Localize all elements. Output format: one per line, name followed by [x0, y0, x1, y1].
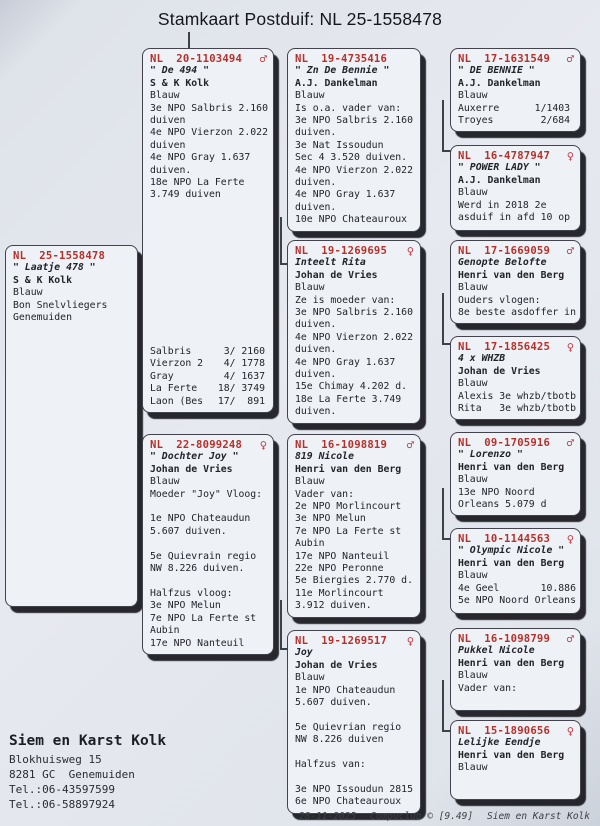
result-line: Bon Snelvliegers — [13, 300, 135, 312]
ring-number: NL 25-1558478 — [13, 250, 105, 262]
ring-number: NL 19-4735416 — [295, 53, 387, 65]
result-line: 10e NPO Chateauroux — [295, 214, 418, 226]
result-line: 18e NPO La Ferte — [150, 177, 271, 189]
male-icon: ♂ — [567, 438, 574, 448]
box-header: NL 16-1098799♂ — [458, 633, 578, 645]
pedigree-box-great-grandparent-5: NL 09-1705916♂" Lorenzo "Henri van den B… — [450, 432, 581, 516]
pedigree-box-mother: NL 22-8099248♀" Dochter Joy "Johan de Vr… — [142, 434, 274, 655]
result-line — [150, 575, 271, 587]
result-line: 1e NPO Chateaudun — [295, 685, 418, 697]
race-stat-cell: 3/ 2160 — [224, 346, 265, 358]
result-line: duiven. — [150, 165, 271, 177]
result-line: Halfzus vloog: — [150, 588, 271, 600]
print-footer: 28-11-2025Compuclub © [9.49]Siem en Kars… — [299, 811, 590, 822]
male-icon: ♂ — [567, 634, 574, 644]
ring-number: NL 19-1269517 — [295, 635, 387, 647]
female-icon: ♀ — [407, 246, 414, 256]
result-line: Sec 4 3.520 duiven. — [295, 152, 418, 164]
pedigree-box-great-grandparent-4: NL 17-1856425♀4 x WHZBJohan de VriesBlau… — [450, 336, 581, 420]
result-line: 1e NPO Chateaudun — [150, 513, 271, 525]
result-line: 7e NPO La Ferte st — [150, 613, 271, 625]
result-line: duiven. — [295, 127, 418, 139]
female-icon: ♀ — [567, 151, 574, 161]
result-line: Blauw — [458, 378, 578, 390]
result-line: 3e NPO Salbris 2.160 — [150, 103, 271, 115]
female-icon: ♀ — [567, 534, 574, 544]
result-line: Ouders vlogen: — [458, 295, 578, 307]
result-line: 5e Biergies 2.770 d. — [295, 575, 418, 587]
loft-name: Johan de Vries — [295, 270, 418, 282]
result-line — [295, 771, 418, 783]
box-header: NL 16-1098819♂ — [295, 439, 418, 451]
result-line: Werd in 2018 2e — [458, 200, 578, 212]
pedigree-box-grandmother-maternal: NL 19-1269517♀JoyJohan de VriesBlauw1e N… — [287, 630, 421, 814]
owner-phone-line: Tel.:06-43597599 — [9, 782, 166, 797]
result-line: Halfzus van: — [295, 759, 418, 771]
loft-name: Henri van den Berg — [458, 558, 578, 570]
result-line: duiven. — [295, 319, 418, 331]
loft-name: Johan de Vries — [295, 660, 418, 672]
box-header: NL 09-1705916♂ — [458, 437, 578, 449]
result-line: 5e NPO Noord Orleans — [458, 595, 578, 607]
race-stat-cell: Laon (Bes — [150, 396, 203, 408]
loft-name: Henri van den Berg — [458, 462, 578, 474]
box-header: NL 17-1669059♂ — [458, 245, 578, 257]
race-stat-cell: 4/ 1637 — [224, 371, 265, 383]
male-icon: ♂ — [260, 54, 267, 64]
ring-number: NL 16-4787947 — [458, 150, 550, 162]
result-line: 8e beste asdoffer in — [458, 307, 578, 319]
race-stat-cell: La Ferte — [150, 383, 197, 395]
result-line: 5.607 duiven. — [150, 526, 271, 538]
loft-name: Henri van den Berg — [458, 750, 578, 762]
result-line: 2e NPO Morlincourt — [295, 501, 418, 513]
page-title: Stamkaart Postduif: NL 25-1558478 — [0, 9, 600, 30]
result-line: 3e NPO Salbris 2.160 — [295, 115, 418, 127]
box-header: NL 19-1269695♀ — [295, 245, 418, 257]
pedigree-box-great-grandparent-6: NL 10-1144563♀" Olympic Nicole "Henri va… — [450, 528, 581, 614]
result-line: Blauw — [295, 476, 418, 488]
result-line: Blauw — [150, 476, 271, 488]
race-stat-cell: 18/ 3749 — [218, 383, 265, 395]
pedigree-box-great-grandparent-3: NL 17-1669059♂Genopte BelofteHenri van d… — [450, 240, 581, 324]
loft-name: Henri van den Berg — [458, 658, 578, 670]
owner-phone-line: Tel.:06-58897924 — [9, 797, 166, 812]
result-line: duiven. — [295, 369, 418, 381]
pigeon-name: " De 494 " — [150, 65, 271, 77]
box-header: NL 20-1103494♂ — [150, 53, 271, 65]
spacer — [150, 202, 271, 346]
result-line: Rita 3e whzb/tbotb — [458, 403, 578, 415]
ring-number: NL 20-1103494 — [150, 53, 242, 65]
ring-number: NL 17-1631549 — [458, 53, 550, 65]
box-header: NL 25-1558478 — [13, 250, 135, 262]
result-line: Blauw — [458, 762, 578, 774]
result-line: 17e NPO Nanteuil — [150, 638, 271, 650]
owner-contact-block: Siem en Karst Kolk Blokhuisweg 15 8281 G… — [9, 733, 166, 812]
result-line: Aubin — [150, 625, 271, 637]
result-line: 7e NPO La Ferte st — [295, 526, 418, 538]
result-line: 3.749 duiven — [150, 189, 271, 201]
pigeon-name: Genopte Belofte — [458, 257, 578, 269]
footer-owner: Siem en Karst Kolk — [487, 811, 590, 822]
pedigree-box-great-grandparent-7: NL 16-1098799♂Pukkel NicoleHenri van den… — [450, 628, 581, 711]
result-line: 5e Quievrian regio — [295, 722, 418, 734]
result-line: 4e NPO Vierzon 2.022 — [150, 127, 271, 139]
result-line: Blauw — [150, 90, 271, 102]
ring-number: NL 22-8099248 — [150, 439, 242, 451]
ring-number: NL 17-1669059 — [458, 245, 550, 257]
result-line: duiven. — [295, 406, 418, 418]
ring-number: NL 09-1705916 — [458, 437, 550, 449]
result-line: Blauw — [13, 287, 135, 299]
male-icon: ♂ — [407, 440, 414, 450]
result-line: Blauw — [458, 90, 578, 102]
result-line: 3e NPO Melun — [295, 513, 418, 525]
result-line — [295, 709, 418, 721]
loft-name: Henri van den Berg — [458, 270, 578, 282]
result-line: 4e NPO Gray 1.637 — [295, 357, 418, 369]
box-header: NL 16-4787947♀ — [458, 150, 578, 162]
result-line: 11e Morlincourt — [295, 588, 418, 600]
box-header: NL 15-1890656♀ — [458, 725, 578, 737]
pigeon-name: " Laatje 478 " — [13, 262, 135, 274]
female-icon: ♀ — [260, 440, 267, 450]
result-line: Vader van: — [295, 489, 418, 501]
result-line: Auxerre 1/1403 — [458, 103, 578, 115]
race-stat-cell: 17/ 891 — [218, 396, 265, 408]
pigeon-name: Inteelt Rita — [295, 257, 418, 269]
pedigree-card-page: Stamkaart Postduif: NL 25-1558478 NL 25-… — [0, 0, 600, 826]
result-line: Blauw — [295, 282, 418, 294]
ring-number: NL 17-1856425 — [458, 341, 550, 353]
result-line — [150, 501, 271, 513]
result-line: Alexis 3e whzb/tbotb — [458, 391, 578, 403]
ring-number: NL 16-1098819 — [295, 439, 387, 451]
result-line: 4e NPO Gray 1.637 — [150, 152, 271, 164]
result-line: 15e Chimay 4.202 d. — [295, 381, 418, 393]
ring-number: NL 19-1269695 — [295, 245, 387, 257]
race-stat-cell: 4/ 1778 — [224, 358, 265, 370]
result-line: NW 8.226 duiven. — [150, 563, 271, 575]
loft-name: Johan de Vries — [150, 464, 271, 476]
loft-name: S & K Kolk — [150, 78, 271, 90]
pigeon-name: 4 x WHZB — [458, 353, 578, 365]
female-icon: ♀ — [567, 342, 574, 352]
connector-line — [280, 600, 282, 650]
result-line: duiven. — [295, 177, 418, 189]
result-line: Blauw — [458, 282, 578, 294]
result-line: 4e NPO Gray 1.637 — [295, 189, 418, 201]
race-stat-row: Laon (Bes17/ 891 — [150, 396, 271, 408]
result-line: Blauw — [458, 670, 578, 682]
pigeon-name: Pukkel Nicole — [458, 645, 578, 657]
result-line: Vader van: — [458, 683, 578, 695]
owner-name: Siem en Karst Kolk — [9, 733, 166, 749]
pedigree-box-great-grandparent-2: NL 16-4787947♀" POWER LADY "A.J. Dankelm… — [450, 145, 581, 231]
result-line: 3e NPO Melun — [150, 600, 271, 612]
pigeon-name: " Dochter Joy " — [150, 451, 271, 463]
pigeon-name: 819 Nicole — [295, 451, 418, 463]
race-stat-cell: Salbris — [150, 346, 191, 358]
box-header: NL 19-1269517♀ — [295, 635, 418, 647]
connector-line — [442, 293, 444, 345]
pedigree-box-father: NL 20-1103494♂" De 494 "S & K KolkBlauw3… — [142, 48, 274, 413]
connector-line — [442, 100, 444, 152]
result-line: 13e NPO Noord — [458, 487, 578, 499]
result-line: duiven — [150, 115, 271, 127]
result-line: 4e NPO Vierzon 2.022 — [295, 165, 418, 177]
result-line — [150, 538, 271, 550]
pigeon-name: Lelijke Eendje — [458, 737, 578, 749]
result-line: 17e NPO Nanteuil — [295, 551, 418, 563]
connector-line — [442, 680, 444, 732]
pigeon-name: " POWER LADY " — [458, 162, 578, 174]
result-line: 3.912 duiven. — [295, 600, 418, 612]
pedigree-box-great-grandparent-8: NL 15-1890656♀Lelijke EendjeHenri van de… — [450, 720, 581, 800]
loft-name: S & K Kolk — [13, 275, 135, 287]
footer-app: Compuclub © [9.49] — [370, 811, 473, 822]
race-stat-row: Salbris3/ 2160 — [150, 346, 271, 358]
result-line: Blauw — [458, 570, 578, 582]
pedigree-box-grandfather-maternal: NL 16-1098819♂819 NicoleHenri van den Be… — [287, 434, 421, 618]
result-line: Blauw — [458, 474, 578, 486]
loft-name: A.J. Dankelman — [295, 78, 418, 90]
race-stat-row: Gray4/ 1637 — [150, 371, 271, 383]
race-stat-cell: Gray — [150, 371, 174, 383]
result-line: 4e Geel 10.886 — [458, 583, 578, 595]
result-line: Orleans 5.079 d — [458, 499, 578, 511]
race-stat-cell: Vierzon 2 — [150, 358, 203, 370]
loft-name: A.J. Dankelman — [458, 78, 578, 90]
pedigree-box-subject: NL 25-1558478" Laatje 478 "S & K KolkBla… — [5, 245, 138, 607]
male-icon: ♂ — [567, 54, 574, 64]
pedigree-box-grandmother-paternal: NL 19-1269695♀Inteelt RitaJohan de Vries… — [287, 240, 421, 424]
result-line: 22e NPO Peronne — [295, 563, 418, 575]
owner-address-line: 8281 GC Genemuiden — [9, 767, 166, 782]
result-line: Blauw — [295, 90, 418, 102]
result-line: duiven. — [295, 202, 418, 214]
ring-number: NL 16-1098799 — [458, 633, 550, 645]
pigeon-name: " Olympic Nicole " — [458, 545, 578, 557]
result-line: 5.607 duiven. — [295, 697, 418, 709]
result-line: duiven — [150, 140, 271, 152]
result-line: duiven. — [295, 344, 418, 356]
box-header: NL 22-8099248♀ — [150, 439, 271, 451]
pigeon-name: " Lorenzo " — [458, 449, 578, 461]
footer-date: 28-11-2025 — [299, 811, 356, 822]
result-line: 5e Quievrain regio — [150, 551, 271, 563]
result-line: Ze is moeder van: — [295, 295, 418, 307]
box-header: NL 17-1856425♀ — [458, 341, 578, 353]
result-line: 18e La Ferte 3.749 — [295, 394, 418, 406]
result-line: 4e NPO Vierzon 2.022 — [295, 332, 418, 344]
pedigree-box-great-grandparent-1: NL 17-1631549♂" DE BENNIE "A.J. Dankelma… — [450, 48, 581, 132]
loft-name: Johan de Vries — [458, 366, 578, 378]
loft-name: A.J. Dankelman — [458, 175, 578, 187]
pedigree-box-grandfather-paternal: NL 19-4735416" Zn De Bennie "A.J. Dankel… — [287, 48, 421, 232]
result-line: Genemuiden — [13, 312, 135, 324]
male-icon: ♂ — [567, 246, 574, 256]
result-line: 3e NPO Issoudun 2815 — [295, 784, 418, 796]
box-header: NL 19-4735416 — [295, 53, 418, 65]
result-line: Blauw — [295, 672, 418, 684]
pigeon-name: " Zn De Bennie " — [295, 65, 418, 77]
box-header: NL 17-1631549♂ — [458, 53, 578, 65]
connector-line — [442, 488, 444, 540]
result-line: asduif in afd 10 op — [458, 212, 578, 224]
race-stat-row: La Ferte18/ 3749 — [150, 383, 271, 395]
result-line — [295, 747, 418, 759]
result-line: Is o.a. vader van: — [295, 103, 418, 115]
result-line: NW 8.226 duiven — [295, 734, 418, 746]
result-line: 6e NPO Chateauroux — [295, 796, 418, 808]
ring-number: NL 15-1890656 — [458, 725, 550, 737]
owner-address-line: Blokhuisweg 15 — [9, 752, 166, 767]
female-icon: ♀ — [407, 636, 414, 646]
ring-number: NL 10-1144563 — [458, 533, 550, 545]
result-line: 3e NPO Salbris 2.160 — [295, 307, 418, 319]
result-line: Troyes 2/684 — [458, 115, 578, 127]
connector-line — [280, 217, 282, 265]
result-line: 3e Nat Issoudun — [295, 140, 418, 152]
female-icon: ♀ — [567, 726, 574, 736]
result-line: Aubin — [295, 538, 418, 550]
result-line: Moeder "Joy" Vloog: — [150, 489, 271, 501]
connector-line — [188, 32, 190, 48]
result-line: Blauw — [458, 187, 578, 199]
pigeon-name: Joy — [295, 647, 418, 659]
pigeon-name: " DE BENNIE " — [458, 65, 578, 77]
loft-name: Henri van den Berg — [295, 464, 418, 476]
box-header: NL 10-1144563♀ — [458, 533, 578, 545]
race-stat-row: Vierzon 24/ 1778 — [150, 358, 271, 370]
